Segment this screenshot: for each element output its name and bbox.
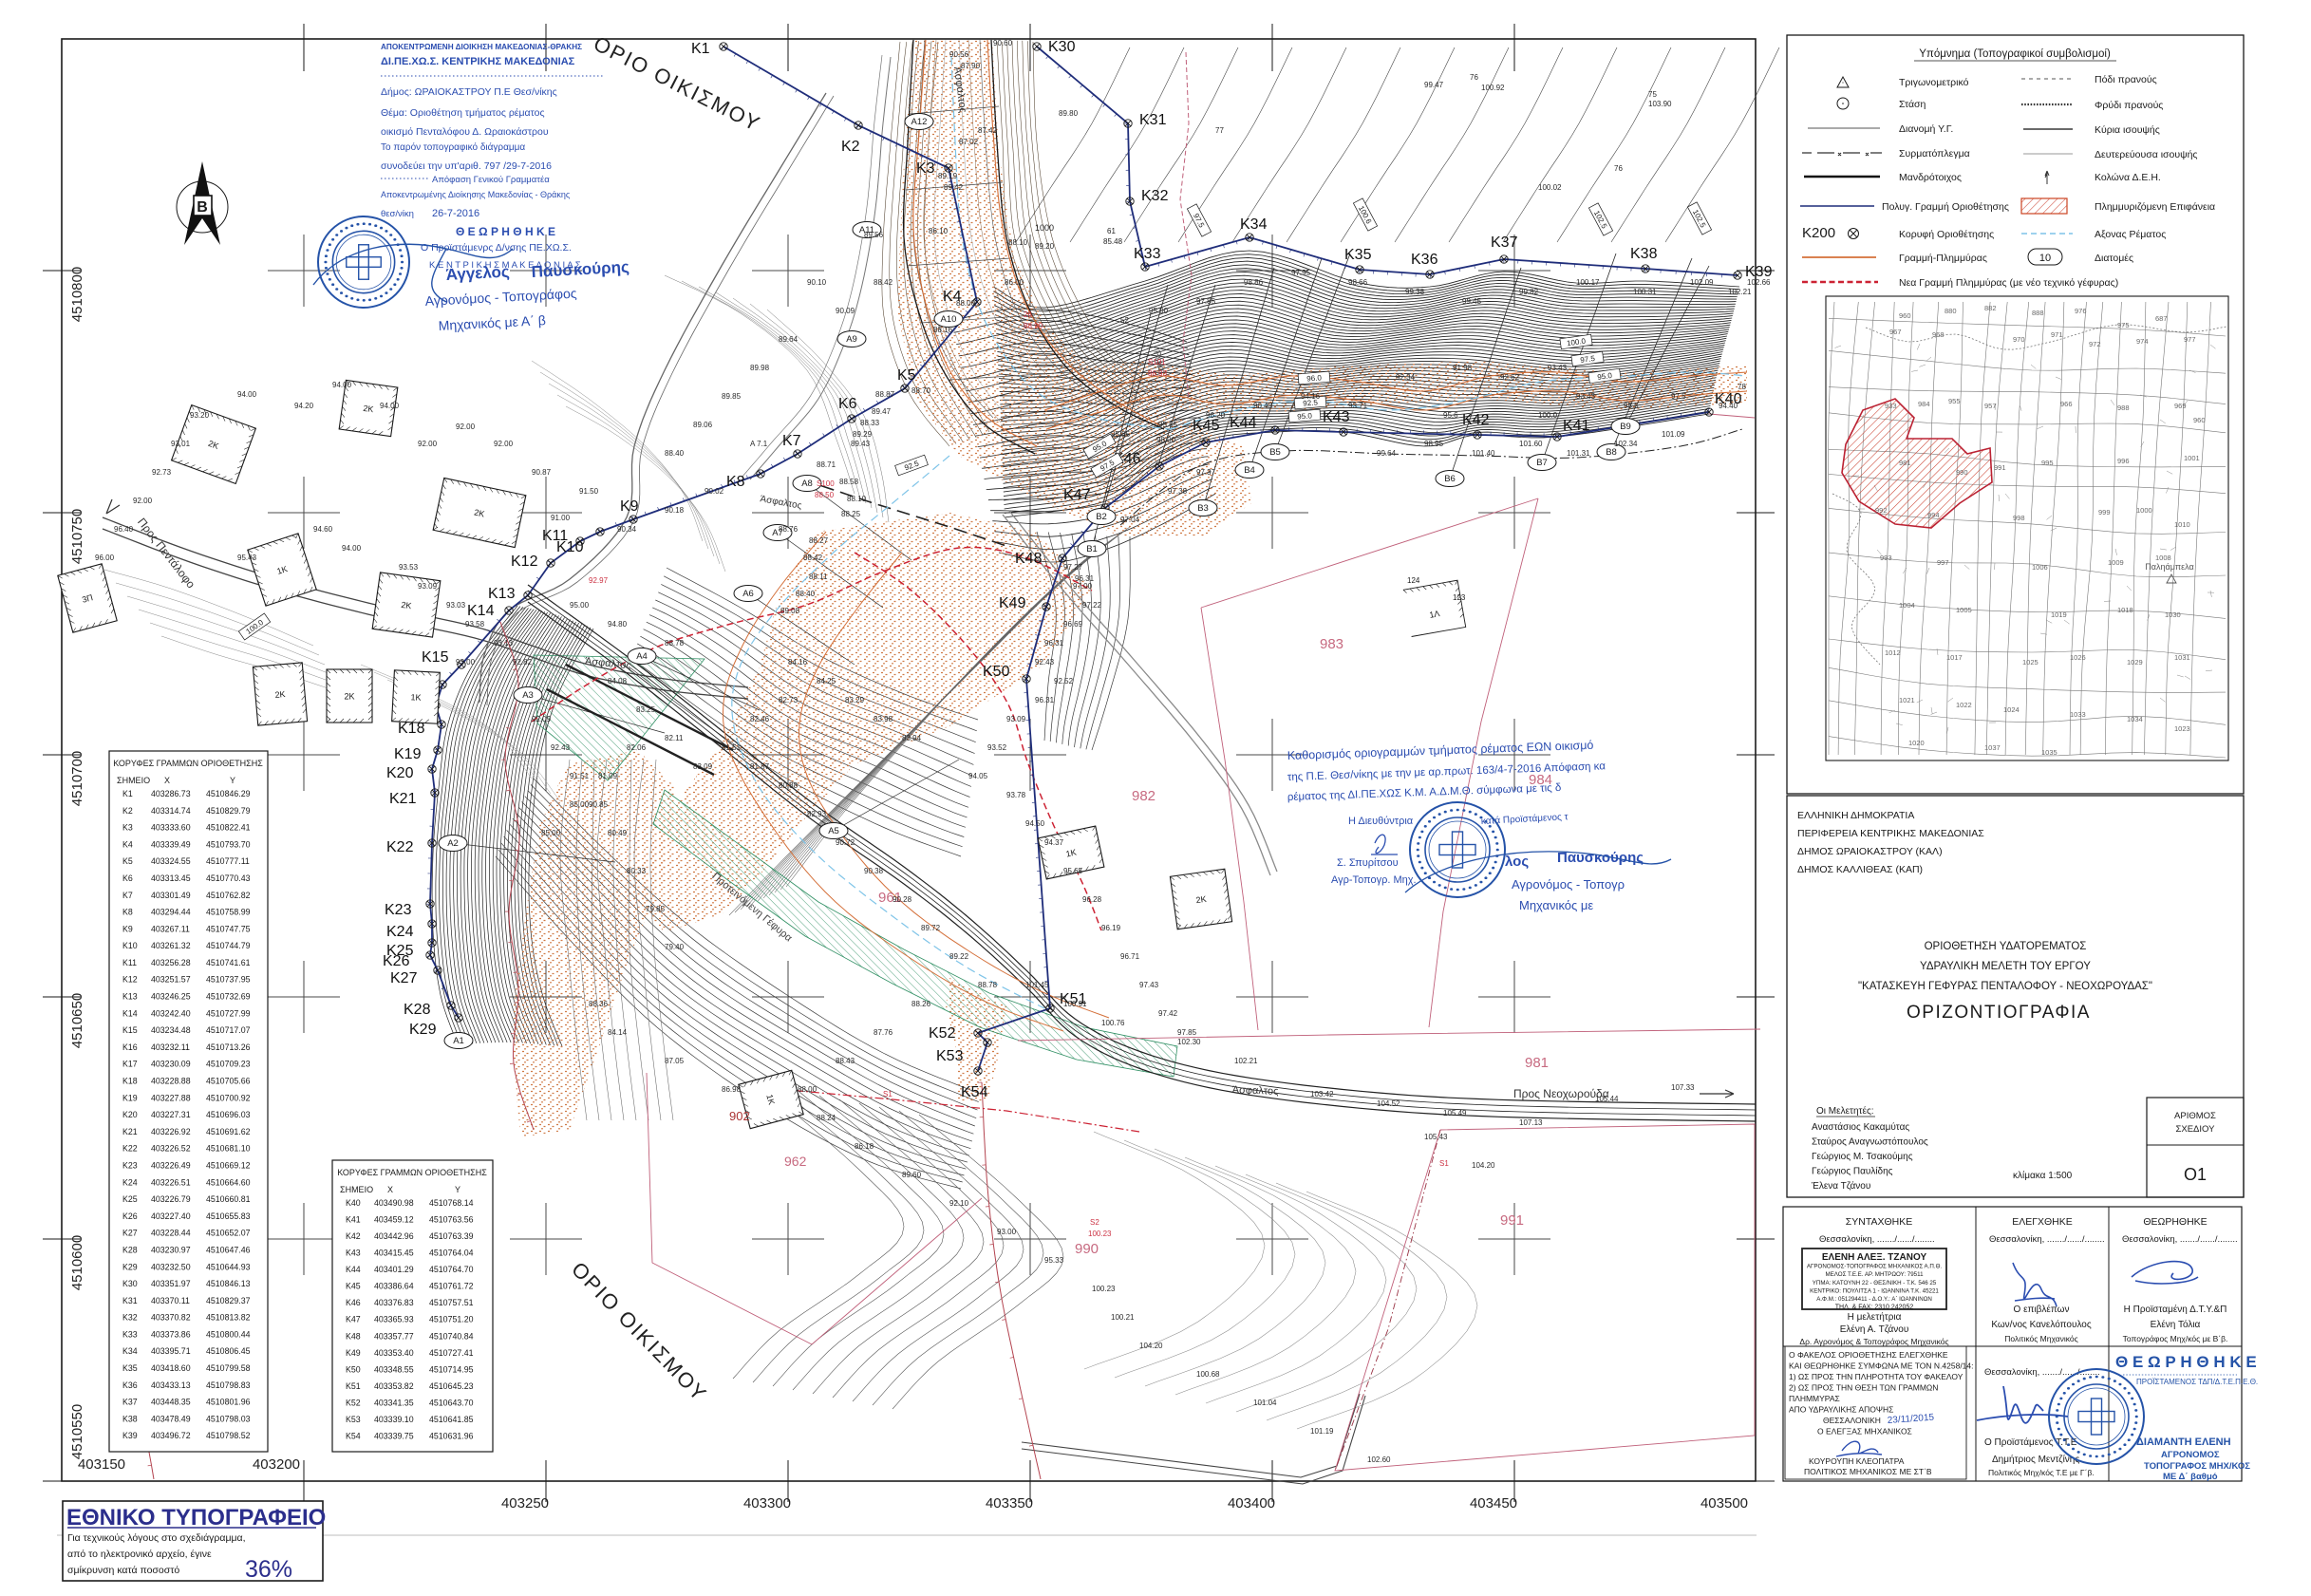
svg-text:92.00: 92.00 [418, 440, 438, 448]
svg-text:87.05: 87.05 [665, 1057, 685, 1065]
svg-text:K13: K13 [122, 992, 138, 1002]
svg-text:4510727.41: 4510727.41 [429, 1348, 474, 1358]
svg-text:88.00: 88.00 [956, 299, 976, 308]
svg-text:ρέματος της ΔΙ.ΠΕ.ΧΩΣ Κ.Μ. Α.Δ: ρέματος της ΔΙ.ΠΕ.ΧΩΣ Κ.Μ. Α.Δ.Μ.Θ. σύμφ… [1287, 782, 1562, 803]
svg-text:ΟΡΙΖΟΝΤΙΟΓΡΑΦΙΑ: ΟΡΙΖΟΝΤΙΟΓΡΑΦΙΑ [1907, 1003, 2091, 1023]
svg-text:Αποκεντρωμένης Διοίκησης Μακεδ: Αποκεντρωμένης Διοίκησης Μακεδονίας - Θρ… [381, 190, 571, 199]
svg-text:94.20: 94.20 [294, 402, 314, 410]
svg-text:K53: K53 [346, 1415, 361, 1424]
svg-text:ΕΛΛΗΝΙΚΗ ΔΗΜΟΚΡΑΤΙΑ: ΕΛΛΗΝΙΚΗ ΔΗΜΟΚΡΑΤΙΑ [1797, 810, 1914, 821]
svg-text:K7: K7 [782, 433, 801, 449]
svg-text:2K: 2K [401, 600, 412, 610]
svg-text:4510761.72: 4510761.72 [429, 1282, 474, 1291]
svg-text:83.25: 83.25 [636, 705, 656, 714]
svg-text:4510713.26: 4510713.26 [206, 1042, 251, 1052]
svg-text:92.43: 92.43 [1035, 658, 1055, 667]
svg-text:K12: K12 [511, 554, 538, 570]
svg-text:Α.Φ.Μ.: 051294411 - Δ.Ο.Υ.: Α΄: Α.Φ.Μ.: 051294411 - Δ.Ο.Υ.: Α΄ ΙΩΑΝΝΙΝΩΝ [1816, 1296, 1932, 1303]
svg-text:Θεσσαλονίκη, ......./....../..: Θεσσαλονίκη, ......./....../........ [1989, 1234, 2105, 1245]
svg-text:107.13: 107.13 [1519, 1118, 1543, 1127]
svg-text:95.33: 95.33 [1044, 1256, 1064, 1265]
svg-text:Θεσσαλονίκη, ......./....../..: Θεσσαλονίκη, ......./....../........ [1984, 1367, 2100, 1378]
svg-text:90.72: 90.72 [836, 838, 855, 847]
svg-text:ΔΙ.ΠΕ.ΧΩ.Σ. ΚΕΝΤΡΙΚΗΣ ΜΑΚΕΔΟΝΙ: ΔΙ.ΠΕ.ΧΩ.Σ. ΚΕΝΤΡΙΚΗΣ ΜΑΚΕΔΟΝΙΑΣ [381, 56, 575, 67]
svg-text:403459.12: 403459.12 [374, 1215, 414, 1225]
svg-text:97.04: 97.04 [1120, 516, 1140, 524]
svg-text:97.85: 97.85 [1196, 297, 1216, 306]
svg-text:ΔΗΜΟΣ ΚΑΛΛΙΘΕΑΣ (ΚΑΠ): ΔΗΜΟΣ ΚΑΛΛΙΘΕΑΣ (ΚΑΠ) [1797, 864, 1923, 875]
svg-text:104.20: 104.20 [1472, 1161, 1495, 1170]
svg-text:403227.31: 403227.31 [151, 1110, 191, 1119]
svg-text:84.08: 84.08 [608, 677, 628, 685]
svg-text:ΠΟΛΙΤΙΚΟΣ ΜΗΧΑΝΙΚΟΣ ΜΕ ΣΤ΄Β: ΠΟΛΙΤΙΚΟΣ ΜΗΧΑΝΙΚΟΣ ΜΕ ΣΤ΄Β [1804, 1467, 1932, 1476]
svg-text:96.31: 96.31 [1035, 696, 1055, 704]
svg-text:403370.11: 403370.11 [151, 1296, 190, 1305]
svg-text:403478.49: 403478.49 [151, 1414, 191, 1423]
svg-text:97.43: 97.43 [1139, 981, 1159, 989]
svg-text:403261.32: 403261.32 [151, 941, 191, 950]
svg-text:4510798.03: 4510798.03 [206, 1414, 251, 1423]
svg-text:B4: B4 [1244, 465, 1255, 476]
svg-text:Πολιτικός Μηχ/κός Τ.Ε με Γ΄β.: Πολιτικός Μηχ/κός Τ.Ε με Γ΄β. [1988, 1468, 2095, 1477]
svg-text:4510799.58: 4510799.58 [206, 1363, 251, 1373]
svg-text:K52: K52 [346, 1398, 361, 1407]
svg-text:K42: K42 [1462, 412, 1490, 428]
svg-text:880: 880 [1945, 307, 1957, 315]
svg-text:Πολυγ. Γραμμή Οριοθέτησης: Πολυγ. Γραμμή Οριοθέτησης [1882, 201, 2009, 213]
svg-text:93.09: 93.09 [418, 582, 438, 591]
svg-text:96.71: 96.71 [1120, 952, 1140, 961]
svg-text:K20: K20 [386, 765, 414, 781]
svg-text:97.22: 97.22 [1082, 601, 1102, 610]
svg-text:K54: K54 [346, 1431, 361, 1440]
svg-text:86.98: 86.98 [722, 1085, 742, 1094]
svg-text:993: 993 [1880, 554, 1892, 562]
svg-text:X: X [164, 776, 170, 785]
svg-text:K31: K31 [1139, 112, 1167, 128]
svg-text:99.82: 99.82 [1519, 288, 1539, 296]
svg-text:A1: A1 [453, 1036, 464, 1046]
svg-text:4510762.82: 4510762.82 [206, 891, 251, 900]
svg-text:1024: 1024 [2003, 705, 2020, 714]
svg-text:89.72: 89.72 [921, 924, 941, 932]
svg-text:4510777.11: 4510777.11 [206, 856, 250, 866]
svg-text:1000: 1000 [2136, 506, 2152, 515]
svg-text:967: 967 [1889, 328, 1902, 336]
svg-text:4510645.23: 4510645.23 [429, 1381, 474, 1391]
svg-text:K23: K23 [122, 1160, 138, 1170]
svg-text:88.90: 88.90 [1024, 322, 1043, 330]
svg-text:K33: K33 [122, 1329, 138, 1339]
svg-text:97.00: 97.00 [1073, 582, 1093, 591]
svg-text:Τοπογράφος Μηχ/κός με Β΄β.: Τοπογράφος Μηχ/κός με Β΄β. [2123, 1334, 2228, 1343]
svg-text:4510800: 4510800 [69, 267, 85, 322]
svg-text:4510664.60: 4510664.60 [206, 1177, 251, 1187]
svg-text:Ο ΕΛΕΓΞΑΣ ΜΗΧΑΝΙΚΟΣ: Ο ΕΛΕΓΞΑΣ ΜΗΧΑΝΙΚΟΣ [1817, 1427, 1912, 1436]
svg-text:990: 990 [1956, 468, 1968, 477]
svg-text:K2: K2 [122, 806, 133, 816]
svg-text:K3: K3 [122, 823, 133, 833]
svg-text:36%: 36% [245, 1556, 292, 1583]
svg-text:100.02: 100.02 [1538, 183, 1562, 192]
svg-text:101.04: 101.04 [1253, 1399, 1277, 1407]
svg-text:83.98: 83.98 [874, 715, 893, 723]
svg-text:994: 994 [1927, 511, 1940, 519]
svg-text:93.78: 93.78 [1006, 791, 1026, 799]
svg-text:ΚΟΡΥΦΕΣ ΓΡΑΜΜΩΝ ΟΡΙΟΘΕΤΗΣΗΣ: ΚΟΡΥΦΕΣ ΓΡΑΜΜΩΝ ΟΡΙΟΘΕΤΗΣΗΣ [113, 759, 263, 768]
svg-text:403339.75: 403339.75 [374, 1431, 414, 1440]
svg-text:K43: K43 [1323, 409, 1350, 425]
svg-text:96.31: 96.31 [1044, 639, 1064, 648]
svg-text:K26: K26 [383, 953, 410, 969]
svg-text:2K: 2K [274, 689, 286, 700]
svg-text:4510709.23: 4510709.23 [206, 1060, 251, 1069]
svg-text:92.97: 92.97 [589, 576, 609, 585]
svg-text:ΕΛΕΓΧΘΗΚΕ: ΕΛΕΓΧΘΗΚΕ [2012, 1216, 2073, 1228]
svg-text:403228.44: 403228.44 [151, 1229, 191, 1238]
svg-text:88.26: 88.26 [911, 1000, 931, 1008]
svg-text:976: 976 [2075, 307, 2087, 315]
svg-text:98.95: 98.95 [1424, 440, 1444, 448]
svg-text:ΘΕΩΡΗΘΗΚΕ: ΘΕΩΡΗΘΗΚΕ [2143, 1216, 2207, 1228]
svg-text:888: 888 [2032, 309, 2044, 317]
svg-text:K28: K28 [122, 1245, 138, 1254]
svg-text:K18: K18 [122, 1077, 138, 1086]
svg-text:K1: K1 [122, 789, 133, 798]
svg-text:ΤΟΠΟΓΡΑΦΟΣ ΜΗΧ/ΚΟΣ: ΤΟΠΟΓΡΑΦΟΣ ΜΗΧ/ΚΟΣ [2144, 1461, 2250, 1472]
svg-text:ΑΠΟΚΕΝΤΡΩΜΕΝΗ ΔΙΟΙΚΗΣΗ ΜΑΚΕΔΟΝ: ΑΠΟΚΕΝΤΡΩΜΕΝΗ ΔΙΟΙΚΗΣΗ ΜΑΚΕΔΟΝΙΑΣ-ΘΡΑΚΗΣ [381, 43, 582, 51]
svg-text:984: 984 [1918, 400, 1930, 408]
svg-text:λος: λος [1505, 854, 1529, 870]
svg-text:K35: K35 [122, 1363, 138, 1373]
svg-text:403256.28: 403256.28 [151, 958, 191, 967]
svg-text:97.5: 97.5 [1671, 392, 1686, 401]
svg-text:4510793.70: 4510793.70 [206, 839, 251, 849]
svg-text:982: 982 [1132, 788, 1155, 804]
svg-text:102.30: 102.30 [1177, 1038, 1201, 1046]
svg-text:75: 75 [1648, 90, 1657, 99]
svg-text:26-7-2016: 26-7-2016 [432, 208, 479, 219]
svg-text:K47: K47 [346, 1315, 361, 1324]
svg-text:4510798.52: 4510798.52 [206, 1431, 251, 1440]
svg-text:995: 995 [2041, 459, 2054, 467]
svg-text:101.45: 101.45 [1025, 981, 1049, 989]
svg-text:Ο Προϊστάμενος Τ.Τ.Ε: Ο Προϊστάμενος Τ.Τ.Ε [1984, 1436, 2077, 1448]
svg-text:89.85: 89.85 [722, 392, 742, 401]
svg-text:89.06: 89.06 [693, 421, 713, 429]
svg-text:4510764.04: 4510764.04 [429, 1249, 474, 1258]
svg-text:4510650: 4510650 [69, 993, 85, 1048]
svg-text:403395.71: 403395.71 [151, 1346, 191, 1356]
svg-text:B5: B5 [1269, 447, 1281, 458]
svg-text:K12: K12 [122, 975, 138, 985]
svg-text:88.50: 88.50 [815, 491, 835, 499]
svg-text:403418.60: 403418.60 [151, 1363, 191, 1373]
svg-text:99.47: 99.47 [1424, 81, 1444, 89]
svg-text:99.38: 99.38 [1405, 288, 1425, 296]
svg-text:ΑΠΟ ΥΔΡΑΥΛΙΚΗΣ ΑΠΟΨΗΣ: ΑΠΟ ΥΔΡΑΥΛΙΚΗΣ ΑΠΟΨΗΣ [1789, 1405, 1893, 1415]
svg-text:4510806.45: 4510806.45 [206, 1346, 251, 1356]
svg-text:92.82: 92.82 [513, 658, 533, 667]
svg-text:981: 981 [1899, 459, 1911, 467]
svg-text:94.80: 94.80 [608, 620, 628, 629]
svg-text:4510741.61: 4510741.61 [206, 958, 251, 967]
svg-text:90.09: 90.09 [836, 307, 855, 315]
svg-text:93.58: 93.58 [465, 620, 485, 629]
svg-text:ΘΕΣΣΑΛΟΝΙΚΗ: ΘΕΣΣΑΛΟΝΙΚΗ [1823, 1416, 1881, 1425]
svg-text:K43: K43 [346, 1249, 361, 1258]
svg-text:92.62: 92.62 [1500, 373, 1520, 382]
svg-text:K9: K9 [122, 924, 133, 933]
svg-text:101.19: 101.19 [1310, 1427, 1334, 1436]
svg-text:ΚΟΡΥΦΕΣ ΓΡΑΜΜΩΝ ΟΡΙΟΘΕΤΗΣΗΣ: ΚΟΡΥΦΕΣ ΓΡΑΜΜΩΝ ΟΡΙΟΘΕΤΗΣΗΣ [337, 1168, 487, 1177]
svg-text:ΑΓΡΟΝΟΜΟΣ-ΤΟΠΟΓΡΑΦΟΣ ΜΗΧΑΝΙΚΟΣ: ΑΓΡΟΝΟΜΟΣ-ΤΟΠΟΓΡΑΦΟΣ ΜΗΧΑΝΙΚΟΣ Α.Π.Θ. [1807, 1264, 1943, 1270]
svg-text:S100: S100 [817, 479, 835, 488]
svg-text:89.29: 89.29 [853, 430, 873, 439]
svg-text:88.78: 88.78 [978, 981, 998, 989]
svg-text:93.09: 93.09 [1006, 715, 1026, 723]
svg-text:K22: K22 [122, 1144, 138, 1154]
svg-text:88.78: 88.78 [665, 639, 685, 648]
svg-text:89.98: 89.98 [750, 364, 770, 372]
svg-text:403490.98: 403490.98 [374, 1198, 414, 1208]
svg-text:100.21: 100.21 [1111, 1313, 1135, 1322]
svg-text:4510829.37: 4510829.37 [206, 1296, 251, 1305]
svg-text:Καθορισμός οριογραμμών τμήματο: Καθορισμός οριογραμμών τμήματος ρέματος … [1287, 739, 1594, 762]
svg-text:ΠΛΗΜΜΥΡΑΣ: ΠΛΗΜΜΥΡΑΣ [1789, 1394, 1840, 1403]
svg-text:K49: K49 [999, 595, 1026, 611]
svg-text:Δρ. Αγρονόμος & Τοπογράφος Μη: Δρ. Αγρονόμος & Τοπογράφος Μηχανικός [1799, 1337, 1948, 1346]
svg-text:ΣΗΜΕΙΟ: ΣΗΜΕΙΟ [117, 776, 150, 785]
svg-text:ΚΟΥΡΟΥΠΗ ΚΛΕΟΠΑΤΡΑ: ΚΟΥΡΟΥΠΗ ΚΛΕΟΠΑΤΡΑ [1809, 1456, 1905, 1466]
svg-text:Παληάμπελα: Παληάμπελα [2145, 562, 2193, 572]
svg-text:K36: K36 [1411, 252, 1438, 268]
svg-text:403350: 403350 [986, 1495, 1033, 1512]
svg-text:90.56: 90.56 [949, 50, 969, 59]
svg-text:1) ΩΣ ΠΡΟΣ ΤΗΝ ΠΛΗΡΟΤΗΤΑ ΤΟΥ Φ: 1) ΩΣ ΠΡΟΣ ΤΗΝ ΠΛΗΡΟΤΗΤΑ ΤΟΥ ΦΑΚΕΛΟΥ [1789, 1372, 1963, 1381]
svg-text:999: 999 [2098, 508, 2111, 516]
svg-text:97.85: 97.85 [1177, 1028, 1197, 1037]
svg-text:95.0: 95.0 [1297, 411, 1313, 421]
svg-text:81.87: 81.87 [750, 762, 770, 771]
svg-text:1026: 1026 [2070, 653, 2086, 662]
svg-text:Δημήτριος Μεντζίνης: Δημήτριος Μεντζίνης [1992, 1454, 2079, 1465]
svg-text:4510758.99: 4510758.99 [206, 908, 251, 917]
svg-text:88.40: 88.40 [665, 449, 685, 458]
svg-text:87.76: 87.76 [874, 1028, 893, 1037]
svg-text:89.56: 89.56 [864, 231, 884, 239]
svg-text:K5: K5 [122, 856, 133, 866]
svg-text:Κύρια ισουψής: Κύρια ισουψής [2095, 124, 2160, 136]
svg-text:403227.88: 403227.88 [151, 1093, 191, 1102]
svg-text:K31: K31 [122, 1296, 138, 1305]
svg-text:θεσ/νίκη: θεσ/νίκη [381, 209, 414, 219]
svg-text:K3: K3 [916, 160, 935, 177]
svg-text:1034: 1034 [2127, 715, 2143, 723]
svg-text:4510768.14: 4510768.14 [429, 1198, 474, 1208]
svg-text:K13: K13 [488, 586, 516, 602]
svg-text:ΚΑΙ ΘΕΩΡΗΘΗΚΕ ΣΥΜΦΩΝΑ ΜΕ ΤΟΝ Ν: ΚΑΙ ΘΕΩΡΗΘΗΚΕ ΣΥΜΦΩΝΑ ΜΕ ΤΟΝ Ν.4258/14: [1789, 1361, 1974, 1371]
svg-text:99.64: 99.64 [1377, 449, 1397, 458]
svg-text:Y: Y [455, 1185, 460, 1194]
svg-text:403442.96: 403442.96 [374, 1231, 414, 1241]
svg-text:1K: 1K [410, 692, 422, 703]
svg-text:88.36: 88.36 [589, 1000, 609, 1008]
svg-text:Σταύρος Αναγνωστόπουλος: Σταύρος Αναγνωστόπουλος [1812, 1136, 1928, 1148]
svg-text:Ο επιβλέπων: Ο επιβλέπων [2014, 1304, 2070, 1315]
svg-text:983: 983 [1320, 636, 1343, 652]
svg-text:Αγρονόμος - Τοπογράφος: Αγρονόμος - Τοπογράφος [424, 286, 577, 309]
svg-text:4510550: 4510550 [69, 1404, 85, 1459]
svg-text:92.00: 92.00 [133, 497, 153, 505]
svg-text:403226.52: 403226.52 [151, 1144, 191, 1154]
svg-text:A2: A2 [447, 838, 459, 849]
svg-text:26: 26 [1024, 310, 1032, 319]
svg-text:1006: 1006 [2032, 563, 2048, 572]
svg-text:Γραμμή-Πλημμύρας: Γραμμή-Πλημμύρας [1899, 253, 1987, 264]
svg-text:4510800.44: 4510800.44 [206, 1329, 251, 1339]
svg-text:K41: K41 [1563, 418, 1590, 434]
svg-text:957: 957 [1984, 402, 1997, 410]
svg-text:ΑΓΡΟΝΟΜΟΣ: ΑΓΡΟΝΟΜΟΣ [2161, 1450, 2220, 1460]
svg-text:403500: 403500 [1700, 1495, 1748, 1512]
svg-text:4510700: 4510700 [69, 751, 85, 806]
svg-text:K48: K48 [346, 1331, 361, 1341]
svg-text:1035: 1035 [2041, 748, 2057, 757]
svg-text:4510600: 4510600 [69, 1235, 85, 1290]
svg-text:102.21: 102.21 [1234, 1057, 1258, 1065]
svg-text:Πλημμυριζόμενη Επιφάνεια: Πλημμυριζόμενη Επιφάνεια [2095, 201, 2215, 213]
svg-text:4510747.75: 4510747.75 [206, 924, 251, 933]
svg-text:52: 52 [1120, 316, 1129, 325]
svg-text:Δήμος: ΩΡΑΙΟΚΑΣΤΡΟΥ Π.Ε Θεσ/ν: Δήμος: ΩΡΑΙΟΚΑΣΤΡΟΥ Π.Ε Θεσ/νίκης [381, 86, 557, 98]
svg-text:960: 960 [2193, 416, 2206, 424]
svg-text:93.53: 93.53 [399, 563, 419, 572]
svg-text:92.09: 92.09 [532, 715, 552, 723]
svg-text:K14: K14 [467, 603, 495, 619]
svg-text:4510822.41: 4510822.41 [206, 823, 251, 833]
svg-text:403246.25: 403246.25 [151, 992, 191, 1002]
svg-text:84.16: 84.16 [788, 658, 808, 667]
svg-text:85.48: 85.48 [1103, 237, 1123, 246]
svg-text:88.40: 88.40 [796, 590, 816, 598]
svg-text:1021: 1021 [1899, 696, 1915, 704]
svg-text:87.90: 87.90 [961, 62, 981, 70]
svg-text:K38: K38 [122, 1414, 138, 1423]
svg-text:96.19: 96.19 [1101, 924, 1121, 932]
svg-text:4510763.39: 4510763.39 [429, 1231, 474, 1241]
svg-text:971: 971 [2051, 330, 2063, 339]
svg-text:Υπόμνημα (Τοπογραφικοί συμβολι: Υπόμνημα (Τοπογραφικοί συμβολισμοί) [1919, 48, 2111, 60]
svg-text:Έλενα Τζάνου: Έλενα Τζάνου [1811, 1180, 1870, 1192]
svg-text:1031: 1031 [2174, 653, 2190, 662]
svg-text:100.23: 100.23 [1092, 1285, 1116, 1293]
svg-text:86.93: 86.93 [1148, 369, 1168, 378]
svg-text:Ο1: Ο1 [2184, 1165, 2207, 1184]
svg-text:της Π.Ε. Θεσ/νίκης με την με α: της Π.Ε. Θεσ/νίκης με την με αρ.πρωτ. 16… [1287, 760, 1606, 783]
svg-text:4510641.85: 4510641.85 [429, 1415, 474, 1424]
svg-text:89.19: 89.19 [938, 172, 958, 180]
svg-text:K26: K26 [122, 1211, 138, 1221]
svg-text:B6: B6 [1444, 474, 1456, 484]
svg-text:K37: K37 [122, 1398, 138, 1407]
svg-text:687: 687 [2155, 314, 2168, 323]
svg-text:123: 123 [1453, 593, 1466, 602]
svg-text:97.95: 97.95 [1291, 269, 1311, 277]
svg-text:K4: K4 [122, 839, 133, 849]
svg-text:82.93: 82.93 [807, 810, 827, 818]
svg-text:4510714.95: 4510714.95 [429, 1364, 474, 1374]
svg-text:4510696.03: 4510696.03 [206, 1110, 251, 1119]
svg-text:95.6: 95.6 [1443, 411, 1458, 420]
svg-text:Η μελετήτρια: Η μελετήτρια [1848, 1311, 1902, 1323]
svg-text:90.43: 90.43 [1253, 402, 1273, 410]
svg-text:92.00: 92.00 [494, 440, 514, 448]
svg-text:88.42: 88.42 [874, 278, 893, 287]
svg-text:4510727.99: 4510727.99 [206, 1008, 251, 1018]
svg-text:οικισμό Πενταλόφου Δ. Ωραιοκά: οικισμό Πενταλόφου Δ. Ωραιοκάστρου [381, 126, 549, 138]
svg-text:1005: 1005 [1956, 606, 1972, 614]
svg-text:1008: 1008 [2155, 554, 2171, 562]
svg-text:2K: 2K [1195, 894, 1207, 905]
svg-text:2K: 2K [363, 404, 374, 414]
svg-text:124: 124 [1407, 576, 1420, 585]
svg-text:403232.11: 403232.11 [151, 1042, 190, 1052]
svg-text:992: 992 [1875, 506, 1888, 515]
svg-text:88.27: 88.27 [809, 536, 829, 545]
svg-text:403496.72: 403496.72 [151, 1431, 191, 1440]
svg-text:90.18: 90.18 [665, 506, 685, 515]
svg-text:ΟΡΙΟ ΟΙΚΙΣΜΟΥ: ΟΡΙΟ ΟΙΚΙΣΜΟΥ [590, 31, 764, 136]
svg-text:88.16: 88.16 [933, 326, 953, 334]
svg-text:Πολιτικός Μηχανικός: Πολιτικός Μηχανικός [2004, 1334, 2077, 1343]
svg-text:94.00: 94.00 [237, 390, 257, 399]
svg-text:ΟΡΙΟΘΕΤΗΣΗ ΥΔΑΤΟΡΕΜΑΤΟΣ: ΟΡΙΟΘΕΤΗΣΗ ΥΔΑΤΟΡΕΜΑΤΟΣ [1925, 941, 2087, 952]
svg-text:Μηχανικός με: Μηχανικός με [1519, 898, 1593, 912]
svg-text:97.42: 97.42 [1158, 1009, 1178, 1018]
svg-text:103.42: 103.42 [1310, 1090, 1334, 1098]
svg-text:99.45: 99.45 [1462, 297, 1482, 306]
svg-text:87.42: 87.42 [978, 126, 998, 135]
svg-text:K44: K44 [346, 1265, 361, 1274]
svg-text:ΔΙΑΜΑΝΤΗ ΕΛΕΝΗ: ΔΙΑΜΑΝΤΗ ΕΛΕΝΗ [2136, 1436, 2231, 1448]
svg-text:Απόφαση Γενικού Γραμματέα: Απόφαση Γενικού Γραμματέα [432, 175, 550, 185]
svg-text:962: 962 [784, 1154, 807, 1169]
svg-text:K15: K15 [422, 649, 449, 666]
svg-text:B8: B8 [1606, 447, 1617, 458]
svg-text:101.40: 101.40 [1472, 449, 1495, 458]
svg-text:S1: S1 [1439, 1159, 1449, 1168]
svg-text:88.10: 88.10 [1008, 238, 1028, 247]
svg-text:90.60: 90.60 [993, 39, 1013, 47]
svg-text:Ελένη Τόλια: Ελένη Τόλια [2151, 1319, 2201, 1330]
svg-text:K8: K8 [726, 474, 745, 490]
svg-text:X: X [387, 1185, 393, 1194]
svg-text:4510763.56: 4510763.56 [429, 1215, 474, 1225]
svg-text:101.31: 101.31 [1567, 449, 1590, 458]
svg-text:970: 970 [2013, 335, 2025, 344]
svg-text:88.33: 88.33 [860, 419, 880, 427]
svg-text:90.28: 90.28 [892, 895, 912, 904]
svg-text:403351.97: 403351.97 [151, 1279, 191, 1288]
svg-text:94.40: 94.40 [1719, 402, 1738, 410]
svg-text:K30: K30 [122, 1279, 138, 1288]
svg-text:933: 933 [1885, 402, 1897, 410]
svg-text:90.87: 90.87 [532, 468, 552, 477]
svg-text:96.00: 96.00 [95, 554, 115, 562]
svg-text:K36: K36 [122, 1380, 138, 1390]
svg-text:403234.48: 403234.48 [151, 1025, 191, 1035]
